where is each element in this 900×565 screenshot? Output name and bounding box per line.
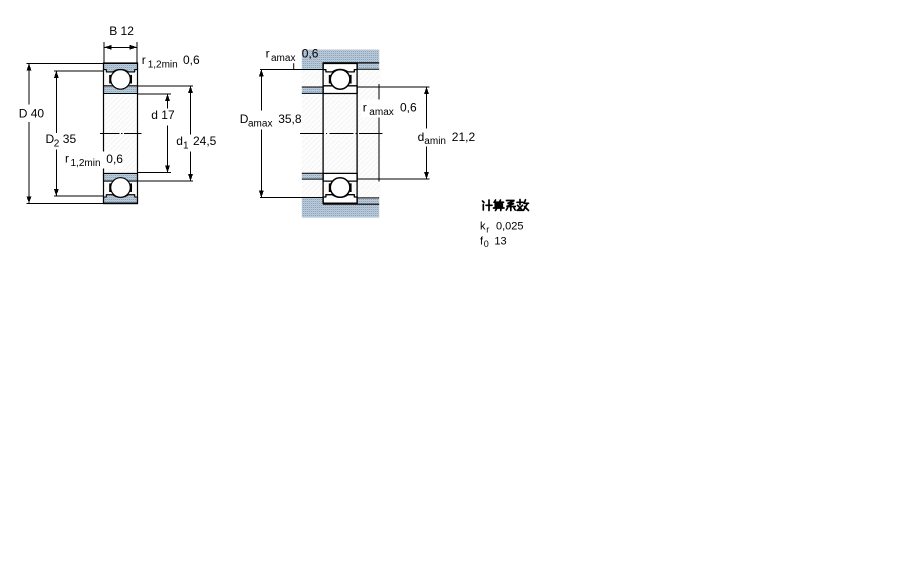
svg-text:d 17: d 17 [151, 108, 175, 122]
svg-text:24,5: 24,5 [193, 134, 217, 148]
svg-text:1,2min: 1,2min [148, 60, 178, 71]
svg-text:0,025: 0,025 [496, 221, 524, 233]
svg-text:d: d [418, 130, 425, 144]
svg-text:35: 35 [63, 132, 77, 146]
svg-text:35,8: 35,8 [278, 112, 302, 126]
svg-text:r: r [65, 151, 69, 165]
svg-text:r: r [266, 47, 270, 61]
svg-text:1: 1 [183, 141, 189, 152]
svg-text:r: r [486, 225, 489, 235]
svg-text:1,2min: 1,2min [71, 158, 101, 169]
svg-text:13: 13 [494, 235, 506, 247]
svg-text:0,6: 0,6 [183, 53, 200, 67]
svg-text:amax: amax [248, 119, 272, 130]
svg-text:0,6: 0,6 [106, 152, 123, 166]
svg-text:r: r [142, 53, 146, 67]
svg-text:k: k [480, 221, 486, 233]
svg-text:0,6: 0,6 [302, 47, 319, 61]
svg-text:B 12: B 12 [109, 24, 134, 38]
svg-text:amin: amin [424, 136, 446, 147]
svg-text:r: r [363, 101, 367, 115]
svg-text:21,2: 21,2 [452, 130, 476, 144]
svg-text:2: 2 [54, 139, 60, 150]
svg-text:0: 0 [484, 239, 489, 249]
svg-text:D 40: D 40 [19, 106, 45, 120]
svg-text:amax: amax [369, 107, 393, 118]
svg-text:amax: amax [271, 53, 295, 64]
svg-text:0,6: 0,6 [400, 101, 417, 115]
svg-text:d: d [176, 134, 183, 148]
